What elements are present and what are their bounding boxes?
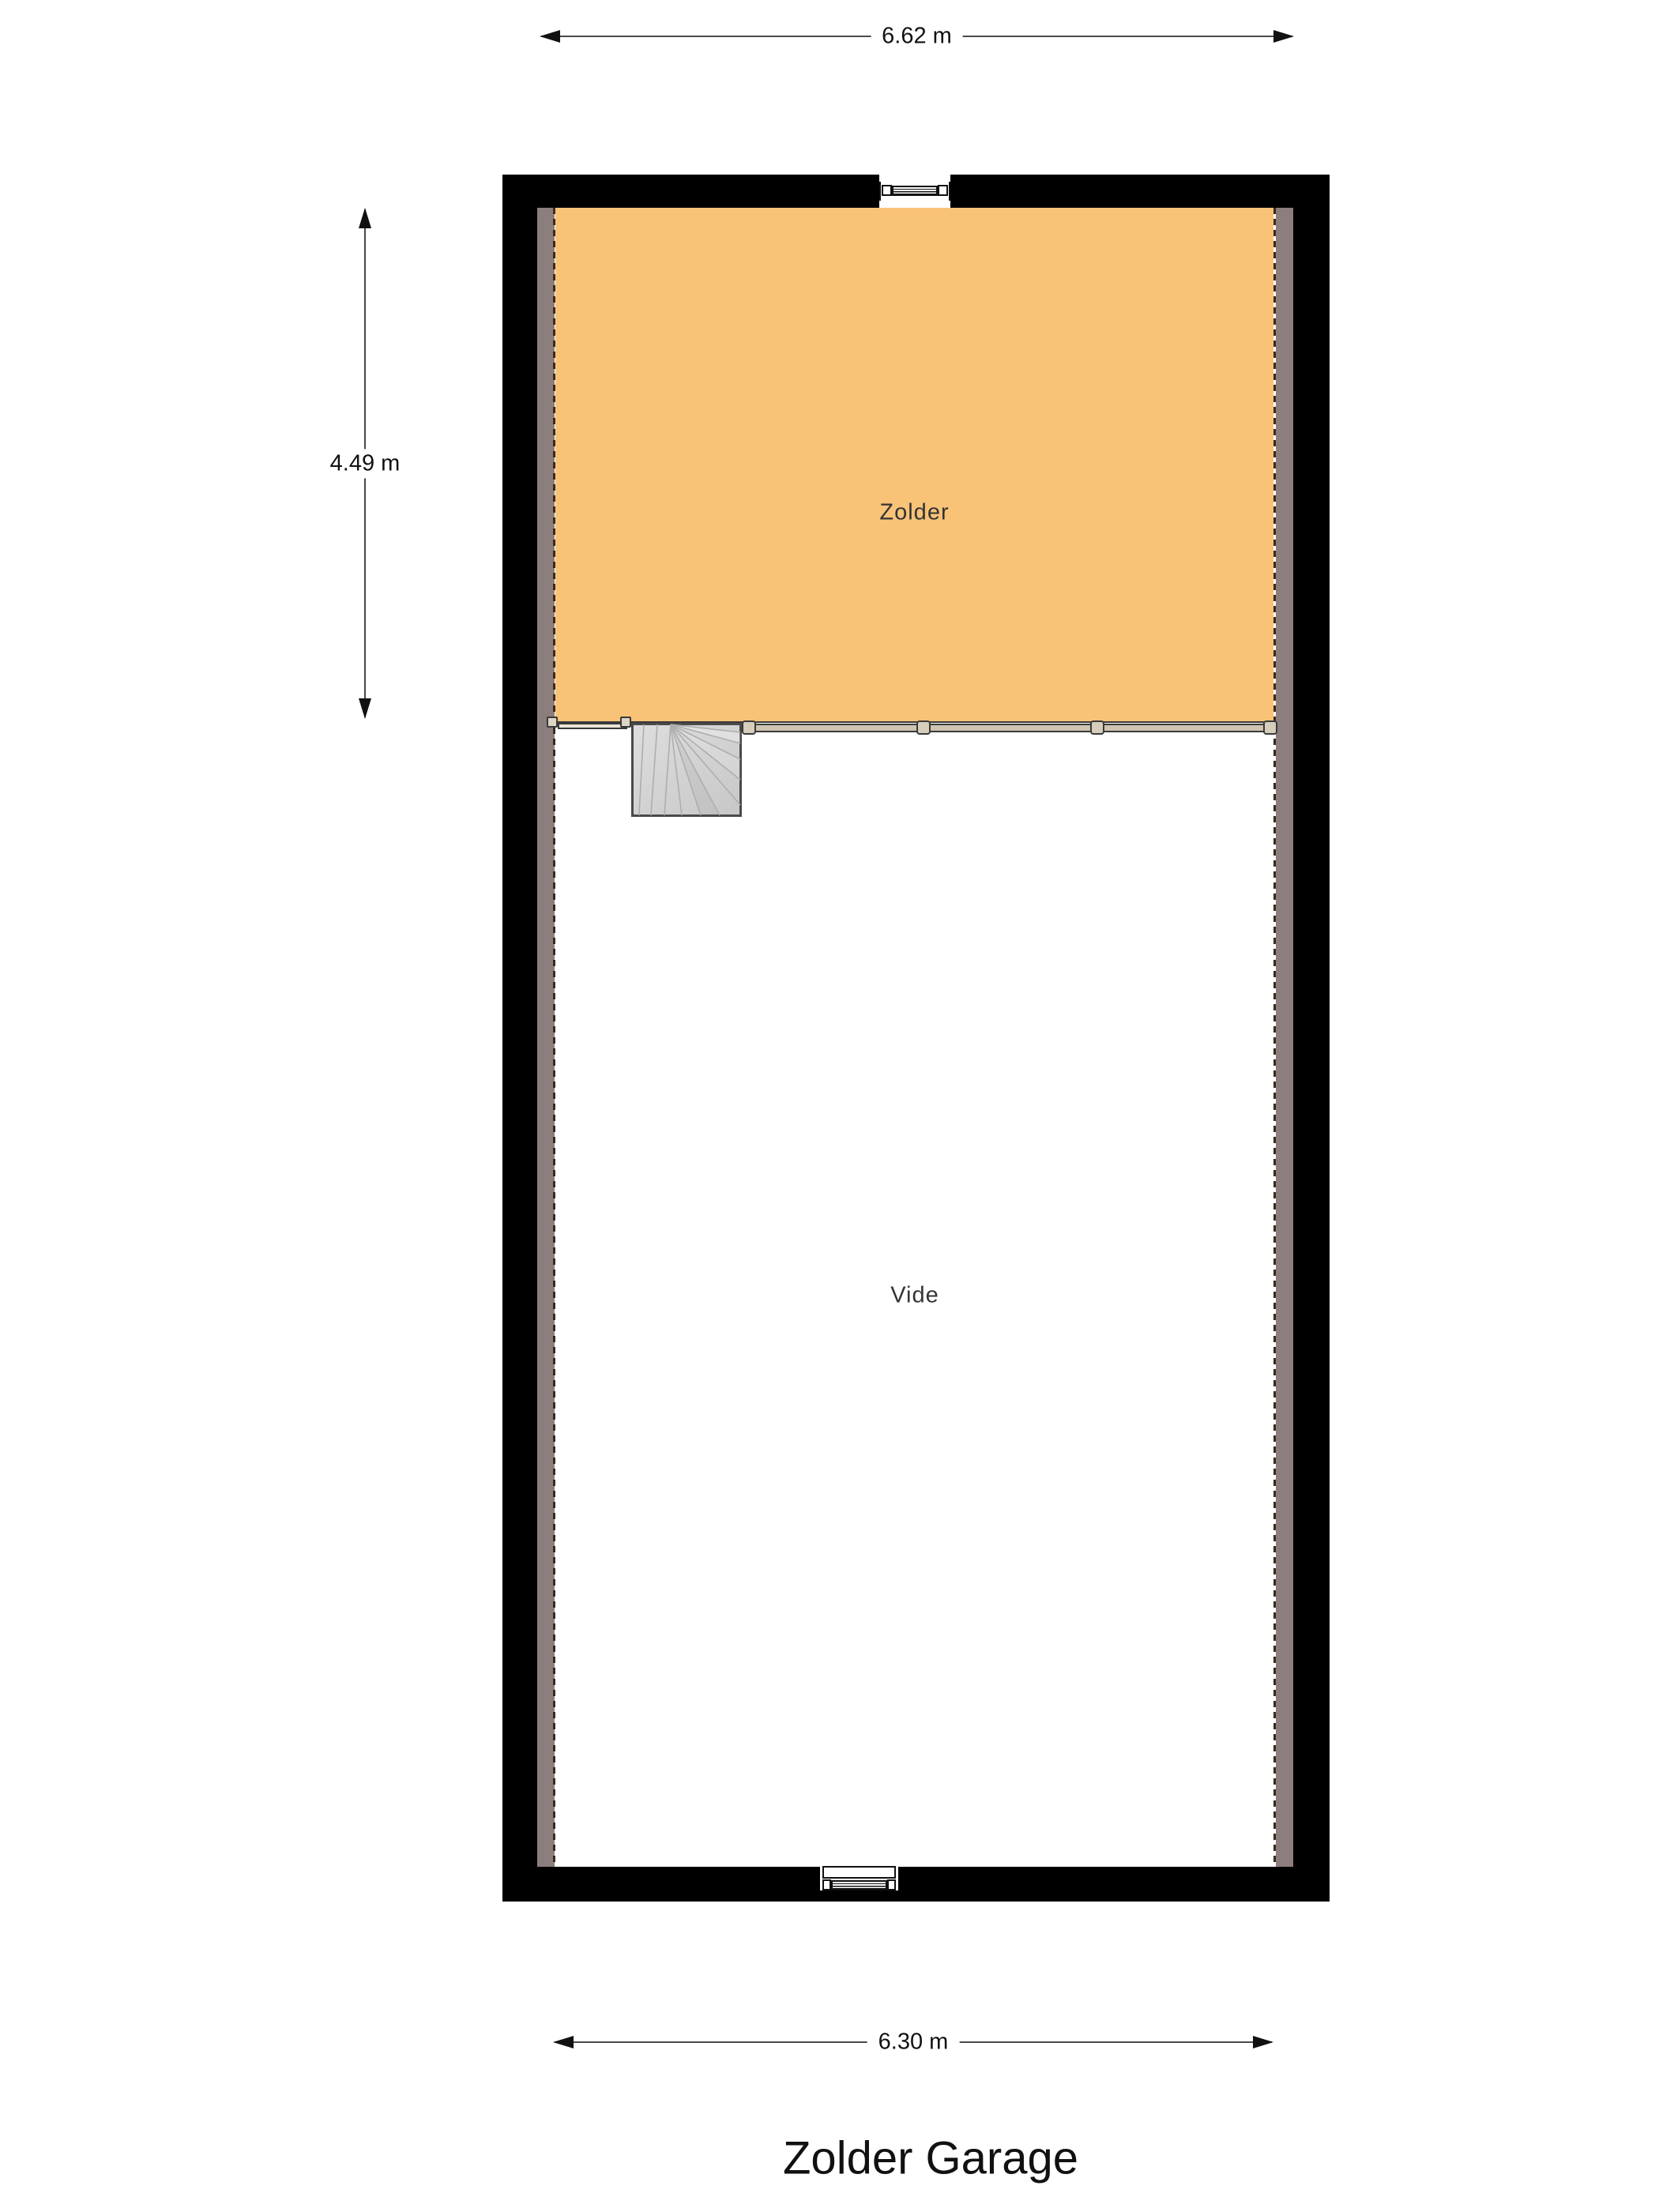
window-icon-top	[879, 175, 950, 208]
dimension-bottom: 6.30 m	[553, 2036, 1273, 2048]
inner-wall-strip-left	[537, 208, 555, 1867]
window-jamb	[882, 185, 892, 196]
railing-post	[620, 717, 631, 728]
stairs-icon	[631, 723, 742, 817]
room-zolder: Zolder	[555, 208, 1273, 723]
window-glazing	[831, 1880, 887, 1890]
window-jamb	[887, 1879, 896, 1890]
railing-post	[547, 717, 558, 728]
railing-post	[1090, 720, 1104, 735]
arrow-left-icon	[553, 2036, 574, 2048]
window-edge	[949, 182, 950, 201]
railing-post	[1263, 720, 1277, 735]
arrow-left-icon	[540, 30, 560, 43]
window-recess	[822, 1866, 896, 1879]
dimension-label-top: 6.62 m	[871, 22, 963, 51]
window-jamb	[938, 185, 948, 196]
room-label-zolder: Zolder	[879, 500, 949, 526]
inner-wall-strip-right	[1276, 208, 1293, 1867]
window-edge	[879, 182, 881, 201]
plan-title: Zolder Garage	[783, 2132, 1078, 2185]
room-label-vide: Vide	[890, 1283, 939, 1309]
arrow-right-icon	[1253, 2036, 1273, 2048]
railing-bar-left	[558, 723, 627, 729]
railing-post	[916, 720, 931, 735]
railing-bar-right	[742, 724, 1274, 732]
window-jamb	[822, 1879, 831, 1890]
floor-plan: 6.62 m 4.49 m Zolder Vide	[0, 0, 1659, 2212]
dimension-label-bottom: 6.30 m	[867, 2028, 960, 2057]
arrow-right-icon	[1273, 30, 1294, 43]
dimension-top: 6.62 m	[540, 30, 1294, 43]
dashed-edge-right	[1273, 208, 1276, 1867]
dimension-label-left: 4.49 m	[319, 449, 412, 478]
arrow-up-icon	[359, 208, 371, 228]
window-icon-bottom	[820, 1866, 898, 1890]
arrow-down-icon	[359, 698, 371, 719]
dimension-left: 4.49 m	[359, 208, 371, 719]
window-glazing	[892, 186, 938, 196]
railing-post	[742, 720, 756, 735]
